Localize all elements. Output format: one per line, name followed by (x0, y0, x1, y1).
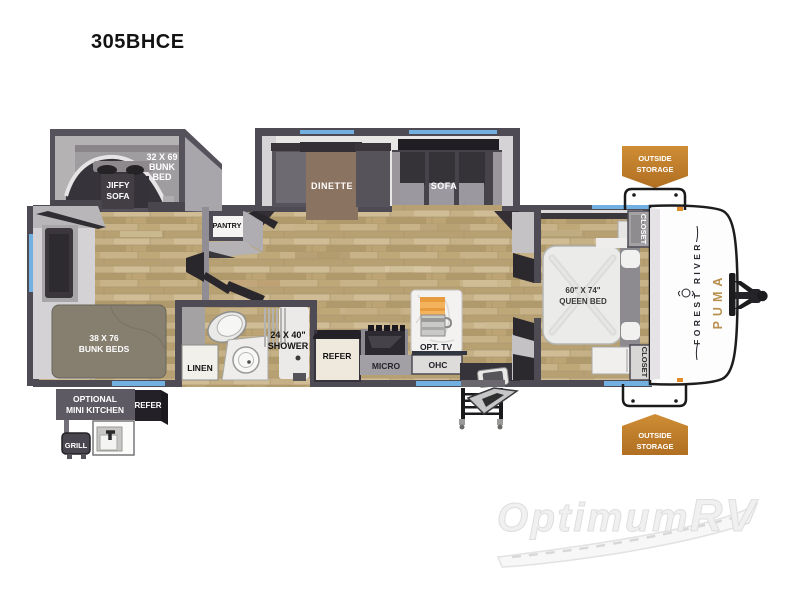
svg-text:FOREST RIVER: FOREST RIVER (692, 241, 702, 345)
svg-text:CLOSET: CLOSET (640, 347, 649, 378)
svg-text:38 X 76: 38 X 76 (89, 333, 119, 343)
svg-text:JIFFY: JIFFY (106, 180, 129, 190)
svg-text:OPTIONAL: OPTIONAL (73, 394, 117, 404)
svg-text:OPT. TV: OPT. TV (420, 342, 452, 352)
svg-text:BED: BED (152, 172, 172, 182)
svg-text:STORAGE: STORAGE (637, 165, 674, 174)
svg-text:OUTSIDE: OUTSIDE (638, 431, 671, 440)
svg-text:QUEEN BED: QUEEN BED (559, 297, 607, 306)
svg-text:BUNK BEDS: BUNK BEDS (79, 344, 130, 354)
svg-text:24 X 40": 24 X 40" (270, 330, 305, 340)
svg-text:PANTRY: PANTRY (213, 221, 242, 230)
svg-text:GRILL: GRILL (65, 441, 88, 450)
svg-text:60" X 74": 60" X 74" (565, 286, 600, 295)
svg-text:DINETTE: DINETTE (311, 181, 353, 191)
svg-text:PUMA: PUMA (711, 273, 725, 330)
svg-text:REFER: REFER (323, 351, 352, 361)
svg-text:STORAGE: STORAGE (637, 442, 674, 451)
svg-text:OUTSIDE: OUTSIDE (638, 154, 671, 163)
svg-text:SOFA: SOFA (106, 191, 129, 201)
svg-text:32 X 69: 32 X 69 (146, 152, 177, 162)
svg-text:LINEN: LINEN (187, 363, 213, 373)
svg-text:MINI KITCHEN: MINI KITCHEN (66, 405, 124, 415)
svg-text:REFER: REFER (134, 401, 161, 410)
svg-text:OHC: OHC (429, 360, 448, 370)
svg-text:BUNK: BUNK (149, 162, 175, 172)
svg-text:SOFA: SOFA (431, 181, 458, 191)
svg-text:SHOWER: SHOWER (268, 341, 309, 351)
svg-text:MICRO: MICRO (372, 361, 401, 371)
svg-text:CLOSET: CLOSET (639, 214, 648, 245)
svg-text:OptimumRV: OptimumRV (497, 490, 759, 541)
svg-text:305BHCE: 305BHCE (91, 31, 185, 53)
